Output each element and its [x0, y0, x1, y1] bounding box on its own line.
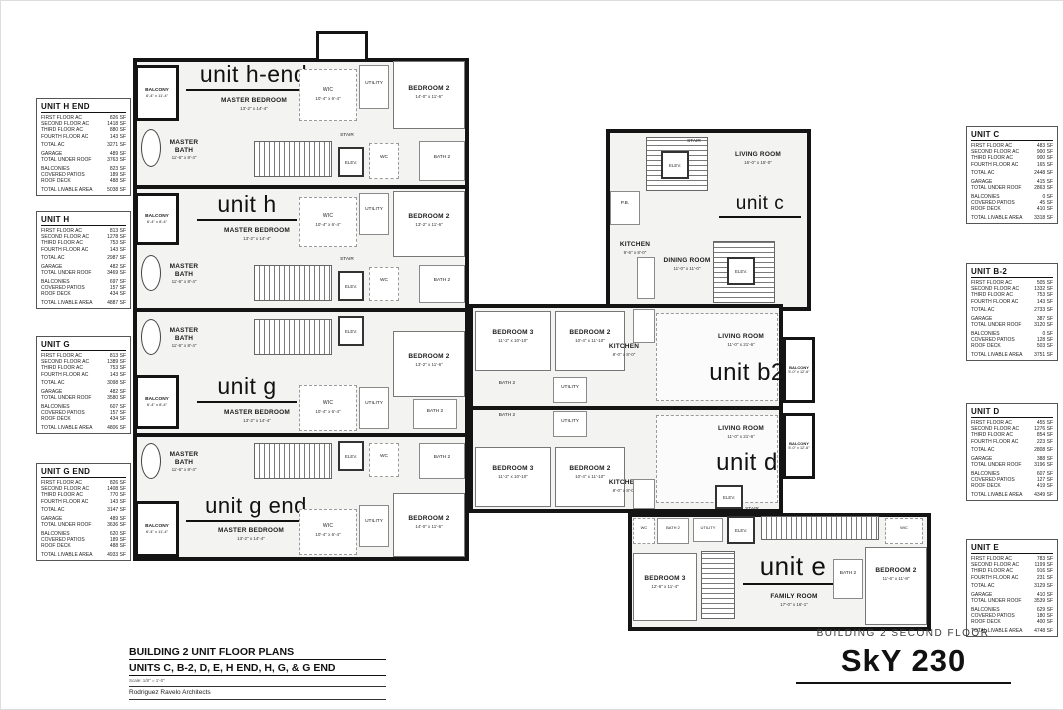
wc-outline	[633, 518, 655, 544]
drawing-sheet: UNIT H ENDFIRST FLOOR AC826 SFSECOND FLO…	[0, 0, 1063, 710]
table-row: TOTAL AC2733 SF	[971, 307, 1053, 313]
unit-table-g: UNIT GFIRST FLOOR AC813 SFSECOND FLOOR A…	[36, 336, 131, 434]
bathtub	[141, 129, 161, 167]
room-label: WIC10'-4" x 6'-4"	[305, 523, 351, 538]
balcony: BALCONY 5'-0" x 12'-6"	[783, 413, 815, 479]
room-label: BATH 2	[487, 413, 527, 419]
room-label: BATH 2	[487, 381, 527, 387]
table-row: TOTAL UNDER ROOF3539 SF	[971, 598, 1053, 604]
table-row: ROOF DECK410 SF	[971, 206, 1053, 212]
room-label: MASTER BEDROOM13'-2" x 14'-4"	[219, 227, 295, 242]
table-row: TOTAL LIVABLE AREA4349 SF	[971, 492, 1053, 498]
table-row: FOURTH FLOOR AC231 SF	[971, 575, 1053, 581]
sheet-subtitle: UNITS C, B-2, D, E, H END, H, G, & G END	[129, 660, 386, 676]
table-row: TOTAL UNDER ROOF3120 SF	[971, 322, 1053, 328]
kitchen-counter	[633, 479, 655, 509]
room-label: KITCHEN9'-6" x 8'-0"	[611, 241, 659, 256]
room-label: P.B.	[610, 201, 640, 207]
table-row: TOTAL AC2987 SF	[41, 255, 126, 261]
stair	[254, 141, 332, 177]
bathtub	[141, 255, 161, 291]
table-title: UNIT E	[971, 543, 1053, 554]
room-label: MASTER BATH11'-6" x 8'-4"	[163, 139, 205, 162]
room-label: STAIR	[681, 139, 707, 145]
balcony: BALCONY 6'-4" x 8'-4"	[135, 375, 179, 429]
table-row: TOTAL AC2448 SF	[971, 170, 1053, 176]
wc-outline	[369, 143, 399, 179]
room-label: BEDROOM 210'-4" x 11'-10"	[559, 465, 621, 480]
table-row: ROOF DECK488 SF	[41, 543, 126, 549]
room-label: WIC10'-4" x 6'-4"	[305, 87, 351, 102]
room-label: MASTER BEDROOM13'-2" x 14'-4"	[219, 409, 295, 424]
unit-table-h-end: UNIT H ENDFIRST FLOOR AC826 SFSECOND FLO…	[36, 98, 131, 196]
table-row: FOURTH FLOOR AC165 SF	[971, 162, 1053, 168]
wc-outline	[369, 443, 399, 477]
room-label: MASTER BATH11'-6" x 8'-4"	[163, 263, 205, 286]
room-label: WC	[369, 454, 399, 460]
bedroom-2	[865, 547, 927, 625]
stair	[701, 551, 735, 619]
bathtub	[141, 443, 161, 479]
utility-room	[359, 505, 389, 547]
table-row: TOTAL AC3098 SF	[41, 380, 126, 386]
room-label: BEDROOM 311'-2" x 10'-10"	[479, 465, 547, 480]
bath-2	[419, 265, 465, 303]
elevator: ELEV.	[727, 516, 755, 544]
floor-caption: BUILDING 2 SECOND FLOOR	[794, 628, 1012, 639]
room-label: STAIR	[334, 257, 360, 263]
table-row: TOTAL AC3129 SF	[971, 583, 1053, 589]
elevator: ELEV.	[338, 271, 364, 301]
table-title: UNIT D	[971, 407, 1053, 418]
room-label: WIC	[885, 525, 923, 531]
elevator: ELEV.	[338, 147, 364, 177]
room-label: BEDROOM 312'-6" x 11'-4"	[635, 575, 695, 590]
table-row: TOTAL UNDER ROOF3580 SF	[41, 395, 126, 401]
room-label: BATH 2	[419, 278, 465, 284]
unit-title-h: unit h	[197, 191, 297, 221]
room-label: LIVING ROOM11'-0" x 21'-6"	[701, 425, 781, 440]
room-label: BATH 2	[413, 409, 457, 415]
room-label: WC	[369, 278, 399, 284]
party-wall	[469, 406, 783, 410]
powder-bath	[610, 191, 640, 225]
table-title: UNIT H END	[41, 102, 126, 113]
room-label: BATH 2	[419, 155, 465, 161]
table-row: TOTAL LIVABLE AREA5038 SF	[41, 187, 126, 193]
unit-title-g: unit g	[197, 373, 297, 403]
table-row: ROOF DECK434 SF	[41, 416, 126, 422]
room-label: WC	[369, 155, 399, 161]
room-label: BEDROOM 214'-0" x 11'-6"	[397, 515, 461, 530]
table-row: TOTAL UNDER ROOF3469 SF	[41, 270, 126, 276]
table-row: FOURTH FLOOR AC223 SF	[971, 439, 1053, 445]
room-label: STAIR	[739, 507, 765, 513]
table-row: ROOF DECK503 SF	[971, 343, 1053, 349]
project-logo: SkY 230	[796, 643, 1011, 684]
stair	[254, 443, 332, 479]
room-label: BATH 2	[419, 455, 465, 461]
balcony: BALCONY 6'-4" x 11'-4"	[135, 501, 179, 557]
roof-bulkhead	[316, 31, 368, 62]
party-wall	[133, 308, 469, 312]
table-title: UNIT H	[41, 215, 126, 226]
room-label: KITCHEN8'-0" x 8'-0"	[601, 343, 647, 358]
bath-2	[419, 443, 465, 479]
unit-title-c: unit c	[719, 193, 801, 218]
table-row: TOTAL UNDER ROOF3763 SF	[41, 157, 126, 163]
table-row: ROOF DECK488 SF	[41, 178, 126, 184]
table-row: TOTAL LIVABLE AREA4887 SF	[41, 300, 126, 306]
elevator: ELEV.	[338, 441, 364, 471]
room-label: LIVING ROOM16'-0" x 15'-0"	[723, 151, 793, 166]
table-row: TOTAL LIVABLE AREA3751 SF	[971, 352, 1053, 358]
table-row: ROOF DECK419 SF	[971, 483, 1053, 489]
room-label: BATH 2	[657, 525, 689, 531]
room-label: BATH 2	[833, 571, 863, 577]
kitchen-counter	[637, 257, 655, 299]
elevator: ELEV.	[727, 257, 755, 285]
utility-room	[359, 65, 389, 109]
table-row: TOTAL UNDER ROOF3636 SF	[41, 522, 126, 528]
room-label: UTILITY	[693, 525, 723, 531]
room-label: BEDROOM 211'-6" x 11'-8"	[867, 567, 925, 582]
room-label: FAMILY ROOM17'-0" x 16'-1"	[749, 593, 839, 608]
table-row: TOTAL LIVABLE AREA4933 SF	[41, 552, 126, 558]
balcony: BALCONY 6'-4" x 11'-4"	[135, 65, 179, 121]
table-row: FOURTH FLOOR AC143 SF	[971, 299, 1053, 305]
room-label: MASTER BEDROOM13'-2" x 14'-4"	[213, 527, 289, 542]
party-wall	[133, 433, 469, 437]
room-label: WIC10'-4" x 6'-4"	[305, 213, 351, 228]
table-row: FOURTH FLOOR AC143 SF	[41, 247, 126, 253]
room-label: DINING ROOM11'-0" x 11'-0"	[661, 257, 713, 272]
title-block: BUILDING 2 UNIT FLOOR PLANS UNITS C, B-2…	[129, 646, 386, 700]
room-label: BEDROOM 213'-2" x 11'-6"	[397, 353, 461, 368]
table-row: ROOF DECK400 SF	[971, 619, 1053, 625]
room-label: STAIR	[334, 133, 360, 139]
utility-room	[359, 387, 389, 429]
unit-title-e: unit e	[743, 551, 843, 585]
table-row: TOTAL UNDER ROOF3196 SF	[971, 462, 1053, 468]
stair	[761, 516, 879, 540]
elevator: ELEV.	[338, 316, 364, 346]
bath-2	[657, 518, 689, 544]
room-label: BEDROOM 213'-2" x 11'-6"	[397, 213, 461, 228]
table-row: TOTAL AC3147 SF	[41, 507, 126, 513]
table-title: UNIT G END	[41, 467, 126, 478]
table-row: TOTAL UNDER ROOF2863 SF	[971, 185, 1053, 191]
balcony: BALCONY 6'-4" x 8'-4"	[135, 193, 179, 245]
stair	[254, 265, 332, 301]
room-label: UTILITY	[359, 81, 389, 87]
party-wall	[133, 185, 469, 189]
table-row: FOURTH FLOOR AC143 SF	[41, 372, 126, 378]
room-label: MASTER BATH11'-6" x 8'-4"	[163, 451, 205, 474]
table-title: UNIT G	[41, 340, 126, 351]
unit-table-g-end: UNIT G ENDFIRST FLOOR AC826 SFSECOND FLO…	[36, 463, 131, 561]
scale-note: Scale: 1/8" = 1'-0"	[129, 676, 386, 687]
table-row: TOTAL AC2808 SF	[971, 447, 1053, 453]
unit-table-h: UNIT HFIRST FLOOR AC813 SFSECOND FLOOR A…	[36, 211, 131, 309]
utility-room	[359, 193, 389, 235]
room-label: MASTER BATH11'-6" x 8'-4"	[163, 327, 205, 350]
sheet-title: BUILDING 2 UNIT FLOOR PLANS	[129, 646, 386, 660]
balcony: BALCONY 5'-0" x 12'-6"	[783, 337, 815, 403]
table-row: ROOF DECK434 SF	[41, 291, 126, 297]
kitchen-counter	[633, 309, 655, 343]
elevator: ELEV.	[715, 485, 743, 509]
room-label: MASTER BEDROOM13'-2" x 14'-4"	[216, 97, 292, 112]
table-title: UNIT C	[971, 130, 1053, 141]
bath-2	[833, 559, 863, 599]
architect-name: Rodriguez Ravelo Architects	[129, 687, 386, 700]
room-label: WIC10'-4" x 6'-4"	[305, 400, 351, 415]
table-title: UNIT B-2	[971, 267, 1053, 278]
room-label: UTILITY	[553, 385, 587, 391]
unit-table-e: UNIT EFIRST FLOOR AC783 SFSECOND FLOOR A…	[966, 539, 1058, 637]
room-dims: 6'-4" x 11'-4"	[146, 93, 168, 99]
bath-2	[419, 141, 465, 181]
table-row: FOURTH FLOOR AC143 SF	[41, 134, 126, 140]
unit-table-c: UNIT CFIRST FLOOR AC483 SFSECOND FLOOR A…	[966, 126, 1058, 224]
room-label: BEDROOM 311'-2" x 10'-10"	[479, 329, 547, 344]
room-label: BEDROOM 210'-4" x 11'-10"	[559, 329, 621, 344]
elevator: ELEV.	[661, 151, 689, 179]
room-label: UTILITY	[359, 207, 389, 213]
unit-table-b2: UNIT B-2FIRST FLOOR AC505 SFSECOND FLOOR…	[966, 263, 1058, 361]
stair	[254, 319, 332, 355]
closet-outline	[885, 518, 923, 544]
unit-table-d: UNIT DFIRST FLOOR AC455 SFSECOND FLOOR A…	[966, 403, 1058, 501]
room-label: LIVING ROOM11'-0" x 21'-6"	[701, 333, 781, 348]
wc-outline	[369, 267, 399, 301]
table-row: TOTAL LIVABLE AREA3318 SF	[971, 215, 1053, 221]
table-row: FOURTH FLOOR AC143 SF	[41, 499, 126, 505]
room-label: UTILITY	[359, 519, 389, 525]
room-label: UTILITY	[553, 419, 587, 425]
room-label: WC	[633, 525, 655, 531]
room-label: BEDROOM 214'-0" x 11'-6"	[397, 85, 461, 100]
room-label: UTILITY	[359, 401, 389, 407]
bathtub	[141, 319, 161, 355]
table-row: TOTAL LIVABLE AREA4806 SF	[41, 425, 126, 431]
table-row: TOTAL AC3271 SF	[41, 142, 126, 148]
